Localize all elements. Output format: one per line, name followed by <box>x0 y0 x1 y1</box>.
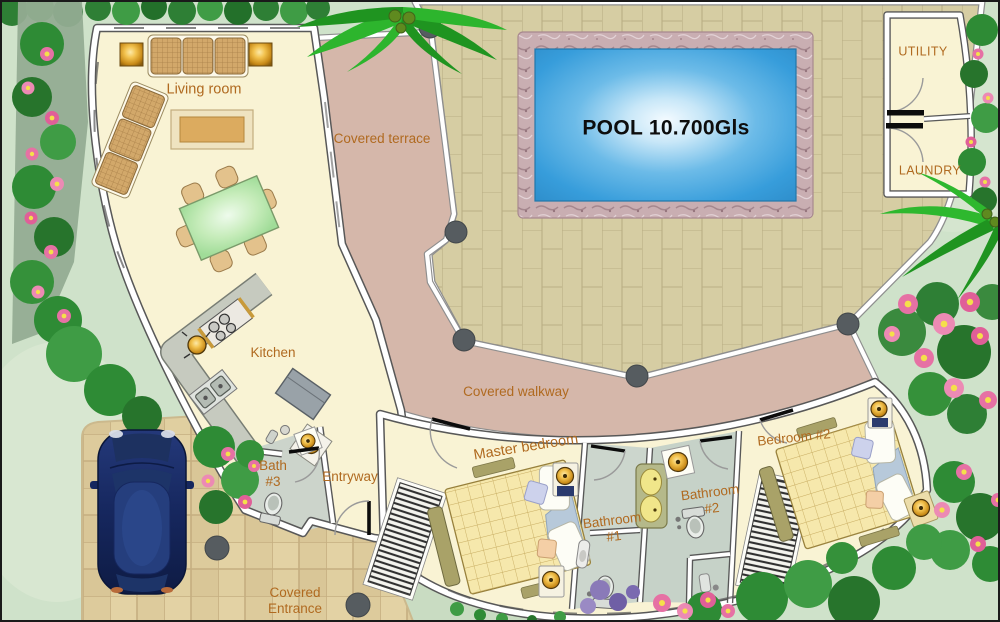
floor-plan-canvas: Living room Covered terrace POOL 10.700G… <box>0 0 1000 622</box>
bathroom2-ceiling-light <box>661 445 694 478</box>
car-taillight <box>161 587 173 593</box>
double-vanity <box>636 464 667 528</box>
column-dot <box>837 313 859 335</box>
car <box>90 430 194 594</box>
utility-building <box>886 15 971 194</box>
master-nightstand-2 <box>539 566 564 597</box>
side-table-right <box>249 43 272 66</box>
car-headlight <box>109 430 123 438</box>
column-dot <box>626 365 648 387</box>
pool-water <box>535 49 796 201</box>
car-headlight <box>161 430 175 438</box>
column-dot <box>445 221 467 243</box>
laundry-door-leaf <box>886 123 923 129</box>
column-dot <box>346 593 370 617</box>
column-dot <box>453 329 475 351</box>
pool <box>518 32 813 218</box>
car-taillight <box>111 587 123 593</box>
floor-plan-drawing <box>2 2 1000 622</box>
side-table-left <box>120 43 143 66</box>
car-hood <box>112 434 172 463</box>
bedroom2-nightstand-1 <box>868 398 892 428</box>
coffee-table <box>171 110 253 149</box>
column-dot <box>205 536 229 560</box>
master-nightstand-1 <box>553 463 578 496</box>
kitchen-pot <box>188 336 206 354</box>
sofa <box>148 35 248 77</box>
utility-door-leaf <box>887 110 924 116</box>
